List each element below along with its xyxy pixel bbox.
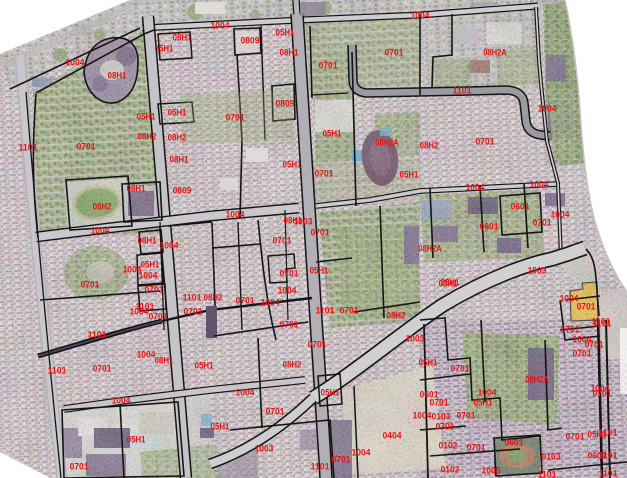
svg-text:1101: 1101 (599, 428, 618, 439)
svg-text:0701: 0701 (308, 340, 327, 351)
svg-text:08H1: 08H1 (127, 184, 146, 195)
svg-text:0701: 0701 (457, 411, 476, 422)
svg-text:1004: 1004 (411, 11, 430, 22)
svg-text:0701: 0701 (280, 320, 299, 331)
svg-text:0701: 0701 (280, 269, 299, 280)
svg-text:0701: 0701 (145, 285, 164, 296)
svg-text:1003: 1003 (406, 334, 425, 345)
svg-text:0701: 0701 (319, 61, 338, 72)
svg-text:0701: 0701 (340, 306, 359, 317)
svg-text:1101: 1101 (183, 293, 202, 304)
svg-text:0601: 0601 (480, 222, 499, 233)
svg-text:05H1: 05H1 (155, 44, 174, 55)
svg-text:08H1: 08H1 (173, 33, 192, 44)
svg-text:1005: 1005 (482, 466, 501, 477)
svg-text:08H1: 08H1 (280, 48, 299, 59)
svg-text:1004: 1004 (466, 183, 485, 194)
svg-text:1004: 1004 (112, 396, 131, 407)
svg-text:1004: 1004 (236, 388, 255, 399)
svg-text:08H2: 08H2 (93, 202, 112, 213)
svg-text:08H2: 08H2 (420, 141, 439, 152)
svg-text:08H2A: 08H2A (525, 375, 549, 386)
svg-text:0701: 0701 (573, 349, 592, 360)
svg-text:0701: 0701 (593, 389, 612, 400)
svg-text:0404: 0404 (383, 431, 402, 442)
svg-text:08H1: 08H1 (138, 236, 157, 247)
svg-text:1004: 1004 (130, 307, 149, 318)
svg-text:08H2: 08H2 (168, 133, 187, 144)
svg-text:1004: 1004 (538, 104, 557, 115)
svg-text:05H1: 05H1 (137, 112, 156, 123)
svg-text:1004: 1004 (160, 241, 179, 252)
svg-text:1101: 1101 (311, 462, 330, 473)
svg-text:05H1: 05H1 (323, 129, 342, 140)
svg-text:0701: 0701 (311, 228, 330, 239)
svg-text:05H1: 05H1 (474, 398, 493, 409)
svg-text:05H1: 05H1 (439, 279, 458, 290)
svg-text:1004: 1004 (278, 286, 297, 297)
svg-text:1003: 1003 (255, 444, 274, 455)
svg-text:1003: 1003 (528, 266, 547, 277)
svg-text:1101: 1101 (19, 143, 38, 154)
svg-text:05H1: 05H1 (141, 260, 160, 271)
svg-text:08H2: 08H2 (283, 360, 302, 371)
svg-text:0701: 0701 (77, 142, 96, 153)
svg-text:1004: 1004 (551, 210, 570, 221)
svg-text:0701: 0701 (273, 236, 292, 247)
svg-text:1004: 1004 (261, 298, 280, 309)
svg-text:1101: 1101 (48, 366, 67, 377)
svg-text:1101: 1101 (599, 469, 618, 478)
svg-text:05H1: 05H1 (127, 435, 146, 446)
svg-text:08H2: 08H2 (204, 293, 223, 304)
svg-text:05H1: 05H1 (310, 266, 329, 277)
svg-text:0701: 0701 (476, 137, 495, 148)
svg-text:08H1: 08H1 (170, 155, 189, 166)
svg-text:05H1: 05H1 (400, 170, 419, 181)
svg-text:1101: 1101 (316, 306, 335, 317)
svg-text:0103: 0103 (542, 452, 561, 463)
svg-text:1004: 1004 (211, 21, 230, 32)
svg-text:08H1: 08H1 (108, 71, 127, 82)
svg-text:1101: 1101 (538, 470, 557, 478)
svg-text:1101: 1101 (593, 319, 612, 330)
svg-text:0701: 0701 (467, 443, 486, 454)
svg-text:1101: 1101 (453, 86, 472, 97)
svg-text:1004: 1004 (530, 180, 549, 191)
svg-text:05H1: 05H1 (283, 160, 302, 171)
svg-text:0701: 0701 (577, 302, 596, 313)
svg-text:0701: 0701 (266, 407, 285, 418)
svg-text:0701: 0701 (236, 296, 255, 307)
svg-text:0701: 0701 (81, 280, 100, 291)
svg-text:0601: 0601 (505, 438, 524, 449)
svg-text:1004: 1004 (91, 226, 110, 237)
svg-text:0701: 0701 (70, 462, 89, 473)
svg-text:0701: 0701 (332, 455, 351, 466)
svg-text:1004: 1004 (226, 210, 245, 221)
svg-text:05H1: 05H1 (276, 28, 295, 39)
svg-text:05H1: 05H1 (321, 388, 340, 399)
svg-text:05H1: 05H1 (211, 422, 230, 433)
svg-text:08H2A: 08H2A (375, 138, 399, 149)
svg-text:0102: 0102 (441, 465, 460, 476)
svg-text:1004: 1004 (137, 350, 156, 361)
svg-text:05H1: 05H1 (419, 358, 438, 369)
svg-text:0701: 0701 (451, 364, 470, 375)
svg-text:1004: 1004 (352, 448, 371, 459)
svg-text:0701: 0701 (226, 113, 245, 124)
svg-text:0701: 0701 (533, 218, 552, 229)
svg-text:0701: 0701 (315, 169, 334, 180)
svg-text:1004: 1004 (413, 411, 432, 422)
svg-text:1004: 1004 (139, 271, 158, 282)
svg-text:0809: 0809 (241, 36, 260, 47)
svg-text:1003: 1003 (294, 217, 313, 228)
svg-text:1101: 1101 (599, 451, 618, 462)
svg-text:0701: 0701 (566, 432, 585, 443)
svg-text:0701: 0701 (149, 312, 168, 323)
svg-text:0701: 0701 (93, 364, 112, 375)
svg-text:05H1: 05H1 (168, 108, 187, 119)
svg-text:0701: 0701 (430, 398, 449, 409)
svg-text:1004: 1004 (66, 58, 85, 69)
svg-text:08H2A: 08H2A (483, 48, 507, 59)
svg-text:0102: 0102 (439, 441, 458, 452)
svg-text:08H2: 08H2 (138, 132, 157, 143)
svg-text:08H1: 08H1 (155, 356, 174, 367)
svg-text:08H2: 08H2 (387, 311, 406, 322)
svg-text:0809: 0809 (173, 186, 192, 197)
svg-text:0809: 0809 (276, 99, 295, 110)
svg-text:0701: 0701 (184, 307, 203, 318)
svg-text:05H1: 05H1 (195, 361, 214, 372)
svg-text:08H2A: 08H2A (418, 244, 442, 255)
svg-text:0701: 0701 (436, 422, 455, 433)
svg-text:0601: 0601 (511, 202, 530, 213)
svg-text:0701: 0701 (385, 48, 404, 59)
svg-text:1101: 1101 (88, 330, 107, 341)
